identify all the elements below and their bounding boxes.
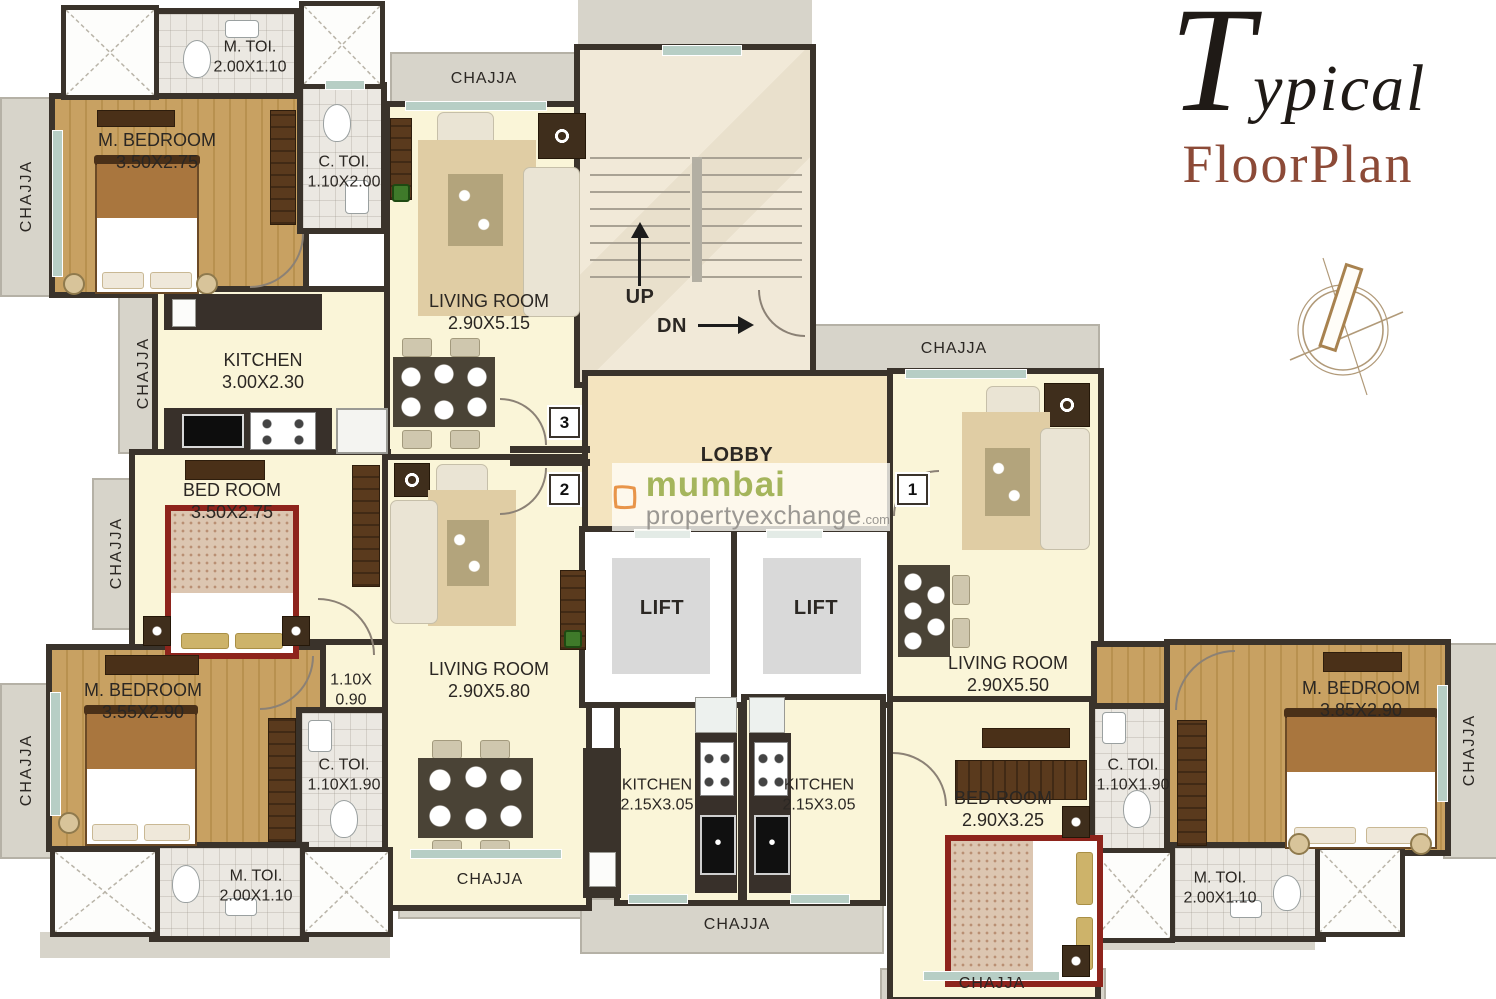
- dining-chair: [450, 338, 480, 357]
- dining-table: [418, 758, 533, 838]
- gas-stove: [250, 412, 316, 450]
- desk: [982, 728, 1070, 748]
- room-name: 1.10X: [330, 671, 372, 688]
- toilet-wc: [183, 40, 211, 78]
- dn-arrow-head: [738, 316, 754, 334]
- label-lift-right: LIFT: [794, 596, 838, 620]
- label-living-flat2: LIVING ROOM2.90X5.80: [429, 659, 549, 703]
- toilet-wc: [1273, 875, 1301, 911]
- floor-lamp: [63, 273, 85, 295]
- room-dims: 2.90X5.15: [429, 313, 549, 335]
- title-initial: T: [1170, 0, 1253, 143]
- label-chajja: CHAJJA: [704, 915, 770, 935]
- room-name: M. TOI.: [230, 867, 283, 884]
- room-name: KITCHEN: [223, 350, 302, 370]
- label-bedroom-flat1: BED ROOM2.90X3.25: [954, 788, 1052, 832]
- room-dims: 3.55X2.90: [84, 702, 202, 724]
- dining-chair: [432, 740, 462, 759]
- dining-chair: [450, 430, 480, 449]
- dresser: [1323, 652, 1402, 672]
- floor-lamp: [196, 273, 218, 295]
- unit-number-2: 2: [549, 474, 580, 505]
- duct-box: [749, 697, 785, 733]
- floor-lamp: [1288, 833, 1310, 855]
- watermark-brand: mumbai: [646, 467, 890, 502]
- room-name: C. TOI.: [1108, 756, 1159, 773]
- room-name: BED ROOM: [954, 788, 1052, 808]
- fridge: [336, 408, 388, 454]
- room-name: C. TOI.: [319, 153, 370, 170]
- label-m-toilet-topleft: M. TOI.2.00X1.10: [214, 37, 287, 76]
- window: [50, 692, 61, 816]
- dresser: [185, 460, 265, 480]
- label-chajja: CHAJJA: [1460, 714, 1480, 786]
- room-dims: 2.00X1.10: [1184, 888, 1257, 908]
- bed-pillow: [144, 824, 189, 841]
- coffee-table: [448, 174, 503, 246]
- label-m-toilet-bottomleft: M. TOI.2.00X1.10: [220, 866, 293, 905]
- dining-chair: [952, 618, 970, 648]
- window: [405, 101, 547, 111]
- room-dims: 2.15X3.05: [783, 795, 856, 815]
- watermark-text: mumbaipropertyexchange.com: [646, 467, 890, 528]
- watermark: mumbaipropertyexchange.com: [612, 463, 890, 531]
- label-passage: 1.10X0.90: [330, 670, 372, 709]
- coffee-table: [447, 520, 489, 586]
- dresser: [97, 110, 175, 127]
- window: [790, 894, 850, 904]
- room-name: LIVING ROOM: [429, 659, 549, 679]
- room-dims: 3.00X2.30: [222, 372, 304, 394]
- room-name: M. BEDROOM: [1302, 678, 1420, 698]
- counter-sheet: [172, 299, 196, 327]
- gas-stove: [700, 742, 734, 796]
- unit-number-1: 1: [897, 474, 928, 505]
- label-bedroom-left: BED ROOM3.50X2.75: [183, 480, 281, 524]
- wardrobe: [270, 110, 296, 225]
- unit-number-label: 3: [560, 413, 569, 433]
- duct-shaft: [55, 852, 155, 932]
- tv-unit: [1044, 383, 1090, 427]
- label-chajja: CHAJJA: [134, 337, 154, 409]
- room-name: KITCHEN: [784, 776, 854, 793]
- label-m-toilet-flat1: M. TOI.2.00X1.10: [1184, 868, 1257, 907]
- dn-arrow: [698, 324, 740, 327]
- bed-pillow: [1076, 852, 1093, 904]
- room-name: C. TOI.: [319, 756, 370, 773]
- plant-pot: [564, 630, 582, 648]
- title-line2: FloorPlan: [1100, 133, 1496, 195]
- dining-table: [898, 565, 950, 657]
- room-dims: 2.00X1.10: [220, 886, 293, 906]
- label-living-flat1: LIVING ROOM2.90X5.50: [948, 653, 1068, 697]
- room-corridor-flat1: [1097, 647, 1177, 703]
- tv-unit: [394, 463, 430, 497]
- label-lift-left: LIFT: [640, 596, 684, 620]
- double-bed: [95, 162, 199, 294]
- room-dims: 3.85X2.90: [1302, 700, 1420, 722]
- plan-title: Typical FloorPlan: [1100, 0, 1496, 195]
- stair-divider: [692, 157, 702, 282]
- title-rest: ypical: [1253, 52, 1426, 125]
- up-arrow: [638, 238, 641, 286]
- wardrobe: [352, 465, 380, 587]
- nightstand: [143, 616, 171, 646]
- up-arrow-head: [631, 222, 649, 238]
- label-m-bedroom-topleft: M. BEDROOM3.50X2.75: [98, 130, 216, 174]
- bathroom-sink: [1102, 712, 1126, 744]
- tv-unit: [538, 113, 586, 159]
- unit-number-label: 1: [908, 480, 917, 500]
- kitchen-oven: [182, 414, 244, 448]
- floor-plan-canvas: 3 2 1 M. TOI.2.00X1.10 M. BEDROOM3.50X2.…: [0, 0, 1496, 999]
- chajja-strip: [578, 0, 812, 50]
- dining-chair: [402, 430, 432, 449]
- label-kitchen-flat2: KITCHEN2.15X3.05: [621, 775, 694, 814]
- watermark-tld: .com: [862, 512, 890, 527]
- label-up: UP: [626, 285, 655, 309]
- wardrobe: [268, 718, 296, 842]
- coffee-table: [985, 448, 1030, 516]
- label-dn: DN: [657, 314, 687, 338]
- wall-stub: [510, 459, 590, 466]
- toilet-wc: [1123, 790, 1151, 828]
- duct-shaft: [66, 10, 154, 95]
- label-chajja: CHAJJA: [17, 160, 37, 232]
- label-chajja: CHAJJA: [457, 870, 523, 890]
- kitchen-sink: [700, 815, 736, 875]
- room-dims: 0.90: [330, 690, 372, 710]
- label-m-bedroom-bottomleft: M. BEDROOM3.55X2.90: [84, 680, 202, 724]
- bed-pillow: [102, 272, 144, 289]
- room-name: KITCHEN: [622, 776, 692, 793]
- label-chajja: CHAJJA: [959, 974, 1025, 994]
- compass-icon: [1285, 250, 1405, 400]
- room-dims: 2.15X3.05: [621, 795, 694, 815]
- room-dims: 1.10X1.90: [308, 775, 381, 795]
- bed-blanket: [1287, 717, 1435, 772]
- label-c-toilet-topleft: C. TOI.1.10X2.00: [308, 152, 381, 191]
- label-living-topleft: LIVING ROOM2.90X5.15: [429, 291, 549, 335]
- window: [52, 130, 63, 277]
- label-c-toilet-bottomleft: C. TOI.1.10X1.90: [308, 755, 381, 794]
- floor-lamp: [58, 812, 80, 834]
- room-name: M. BEDROOM: [98, 130, 216, 150]
- room-dims: 1.10X2.00: [308, 172, 381, 192]
- sofa: [390, 500, 438, 624]
- window: [628, 894, 688, 904]
- window: [662, 45, 742, 56]
- room-name: LIVING ROOM: [429, 291, 549, 311]
- sofa: [1040, 428, 1090, 550]
- bed-pillow: [150, 272, 192, 289]
- room-dims: 1.10X1.90: [1097, 775, 1170, 795]
- wardrobe: [1177, 720, 1207, 846]
- label-chajja: CHAJJA: [451, 69, 517, 89]
- dining-chair: [402, 338, 432, 357]
- dining-table: [393, 357, 495, 427]
- nightstand: [282, 616, 310, 646]
- toilet-wc: [330, 800, 358, 838]
- bathroom-sink: [225, 20, 259, 38]
- room-name: M. TOI.: [224, 38, 277, 55]
- unit-number-label: 2: [560, 480, 569, 500]
- dining-chair: [480, 740, 510, 759]
- room-dims: 2.00X1.10: [214, 57, 287, 77]
- double-bed: [1285, 715, 1437, 849]
- duct-shaft: [305, 852, 388, 932]
- toilet-wc: [323, 104, 351, 142]
- room-name: LIVING ROOM: [948, 653, 1068, 673]
- wall-stub: [510, 446, 590, 453]
- window: [1437, 685, 1448, 802]
- plant-pot: [392, 184, 410, 202]
- label-chajja: CHAJJA: [17, 734, 37, 806]
- room-dims: 3.50X2.75: [98, 152, 216, 174]
- bed-pillow: [181, 633, 229, 649]
- duct-box: [695, 697, 737, 733]
- washing-machine: [589, 852, 616, 887]
- label-kitchen-flat1: KITCHEN2.15X3.05: [783, 775, 856, 814]
- unit-number-3: 3: [549, 407, 580, 438]
- duct-shaft: [304, 6, 380, 84]
- window: [325, 80, 365, 90]
- double-bed: [85, 712, 197, 846]
- kitchen-sink: [754, 815, 790, 875]
- dresser: [105, 655, 199, 675]
- room-dims: 2.90X5.50: [948, 675, 1068, 697]
- duct-shaft: [1320, 850, 1400, 932]
- label-c-toilet-flat1: C. TOI.1.10X1.90: [1097, 755, 1170, 794]
- label-chajja: CHAJJA: [921, 339, 987, 359]
- room-dims: 3.50X2.75: [183, 502, 281, 524]
- window: [905, 369, 1027, 379]
- label-kitchen-topleft: KITCHEN3.00X2.30: [222, 350, 304, 394]
- label-chajja: CHAJJA: [107, 517, 127, 589]
- title-line1: Typical: [1100, 0, 1496, 127]
- window: [410, 849, 562, 859]
- room-dims: 2.90X5.80: [429, 681, 549, 703]
- tv-unit: [1062, 945, 1090, 977]
- tv-unit: [1062, 806, 1090, 838]
- room-name: M. TOI.: [1194, 869, 1247, 886]
- duct-shaft: [1095, 853, 1170, 938]
- double-bed-red: [165, 505, 299, 659]
- toilet-wc: [172, 865, 200, 903]
- bed-pillow: [235, 633, 283, 649]
- bed-pillow: [92, 824, 137, 841]
- watermark-logo-icon: [612, 467, 638, 527]
- watermark-domain: propertyexchange: [646, 500, 862, 530]
- floor-lamp: [1410, 833, 1432, 855]
- room-name: BED ROOM: [183, 480, 281, 500]
- dining-chair: [952, 575, 970, 605]
- room-name: M. BEDROOM: [84, 680, 202, 700]
- label-m-bedroom-flat1: M. BEDROOM3.85X2.90: [1302, 678, 1420, 722]
- room-dims: 2.90X3.25: [954, 810, 1052, 832]
- bathroom-sink: [308, 720, 332, 752]
- stair-flight-right: [702, 157, 802, 282]
